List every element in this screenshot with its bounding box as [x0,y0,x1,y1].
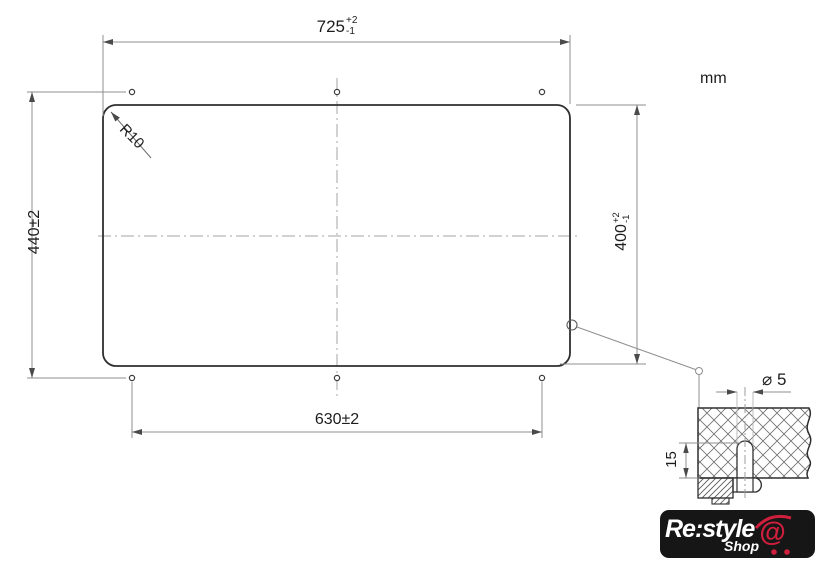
restyle-shop-logo: Re:style Shop @ [660,510,815,558]
arrowhead [753,389,763,394]
arrowhead [103,39,113,45]
mounting-hole-top-left [129,89,134,94]
mounting-hole-bottom-right [539,375,544,380]
callout-circle-edge [567,320,577,330]
dim-label-height-right: 400+2-1 [613,212,632,251]
logo-shop-text: Shop [724,538,759,554]
hole-depth-label: 15 [664,451,679,468]
cart-wheel-icon [784,549,790,555]
dim-bottom-630 [132,382,542,438]
arrowhead [132,429,142,435]
arrowhead [727,389,737,394]
arrowhead [560,39,570,45]
dim-height-tol-minus: -1 [622,212,632,223]
arrowhead [532,429,542,435]
dim-width-value: 725 [317,18,345,35]
dim-width-tol-minus: -1 [346,27,357,38]
mounting-hole-bottom-center [334,375,339,380]
mounting-hole-top-center [334,89,339,94]
dim-width-tol-plus: +2 [346,16,357,27]
dim-label-width: 725+2-1 [317,18,358,37]
arrowhead [29,368,35,378]
arrowhead [634,105,640,115]
cart-wheel-icon [771,549,777,555]
arrowhead [29,92,35,102]
unit-label: mm [700,71,727,87]
clamp-bracket-foot [712,498,729,504]
cutout-template-drawing: 725+2-1 mm 440±2 400+2-1 630±2 R10 ⌀ 5 1… [0,0,840,569]
hole-diameter-label: ⌀ 5 [762,371,786,388]
arrowhead [683,443,688,453]
dim-label-bottom-width: 630±2 [315,412,359,428]
clamp-bracket [698,478,733,498]
arrowhead [683,468,688,478]
arrowhead [634,354,640,364]
dim-height-400 [560,105,646,364]
callout-circle-detail [696,368,703,375]
dim-label-height-left: 440±2 [27,210,43,254]
mounting-hole-top-right [539,89,544,94]
mounting-hole-bottom-left [129,375,134,380]
logo-at-cart-icon: @ [759,517,785,548]
dim-height-value: 400 [614,224,630,251]
